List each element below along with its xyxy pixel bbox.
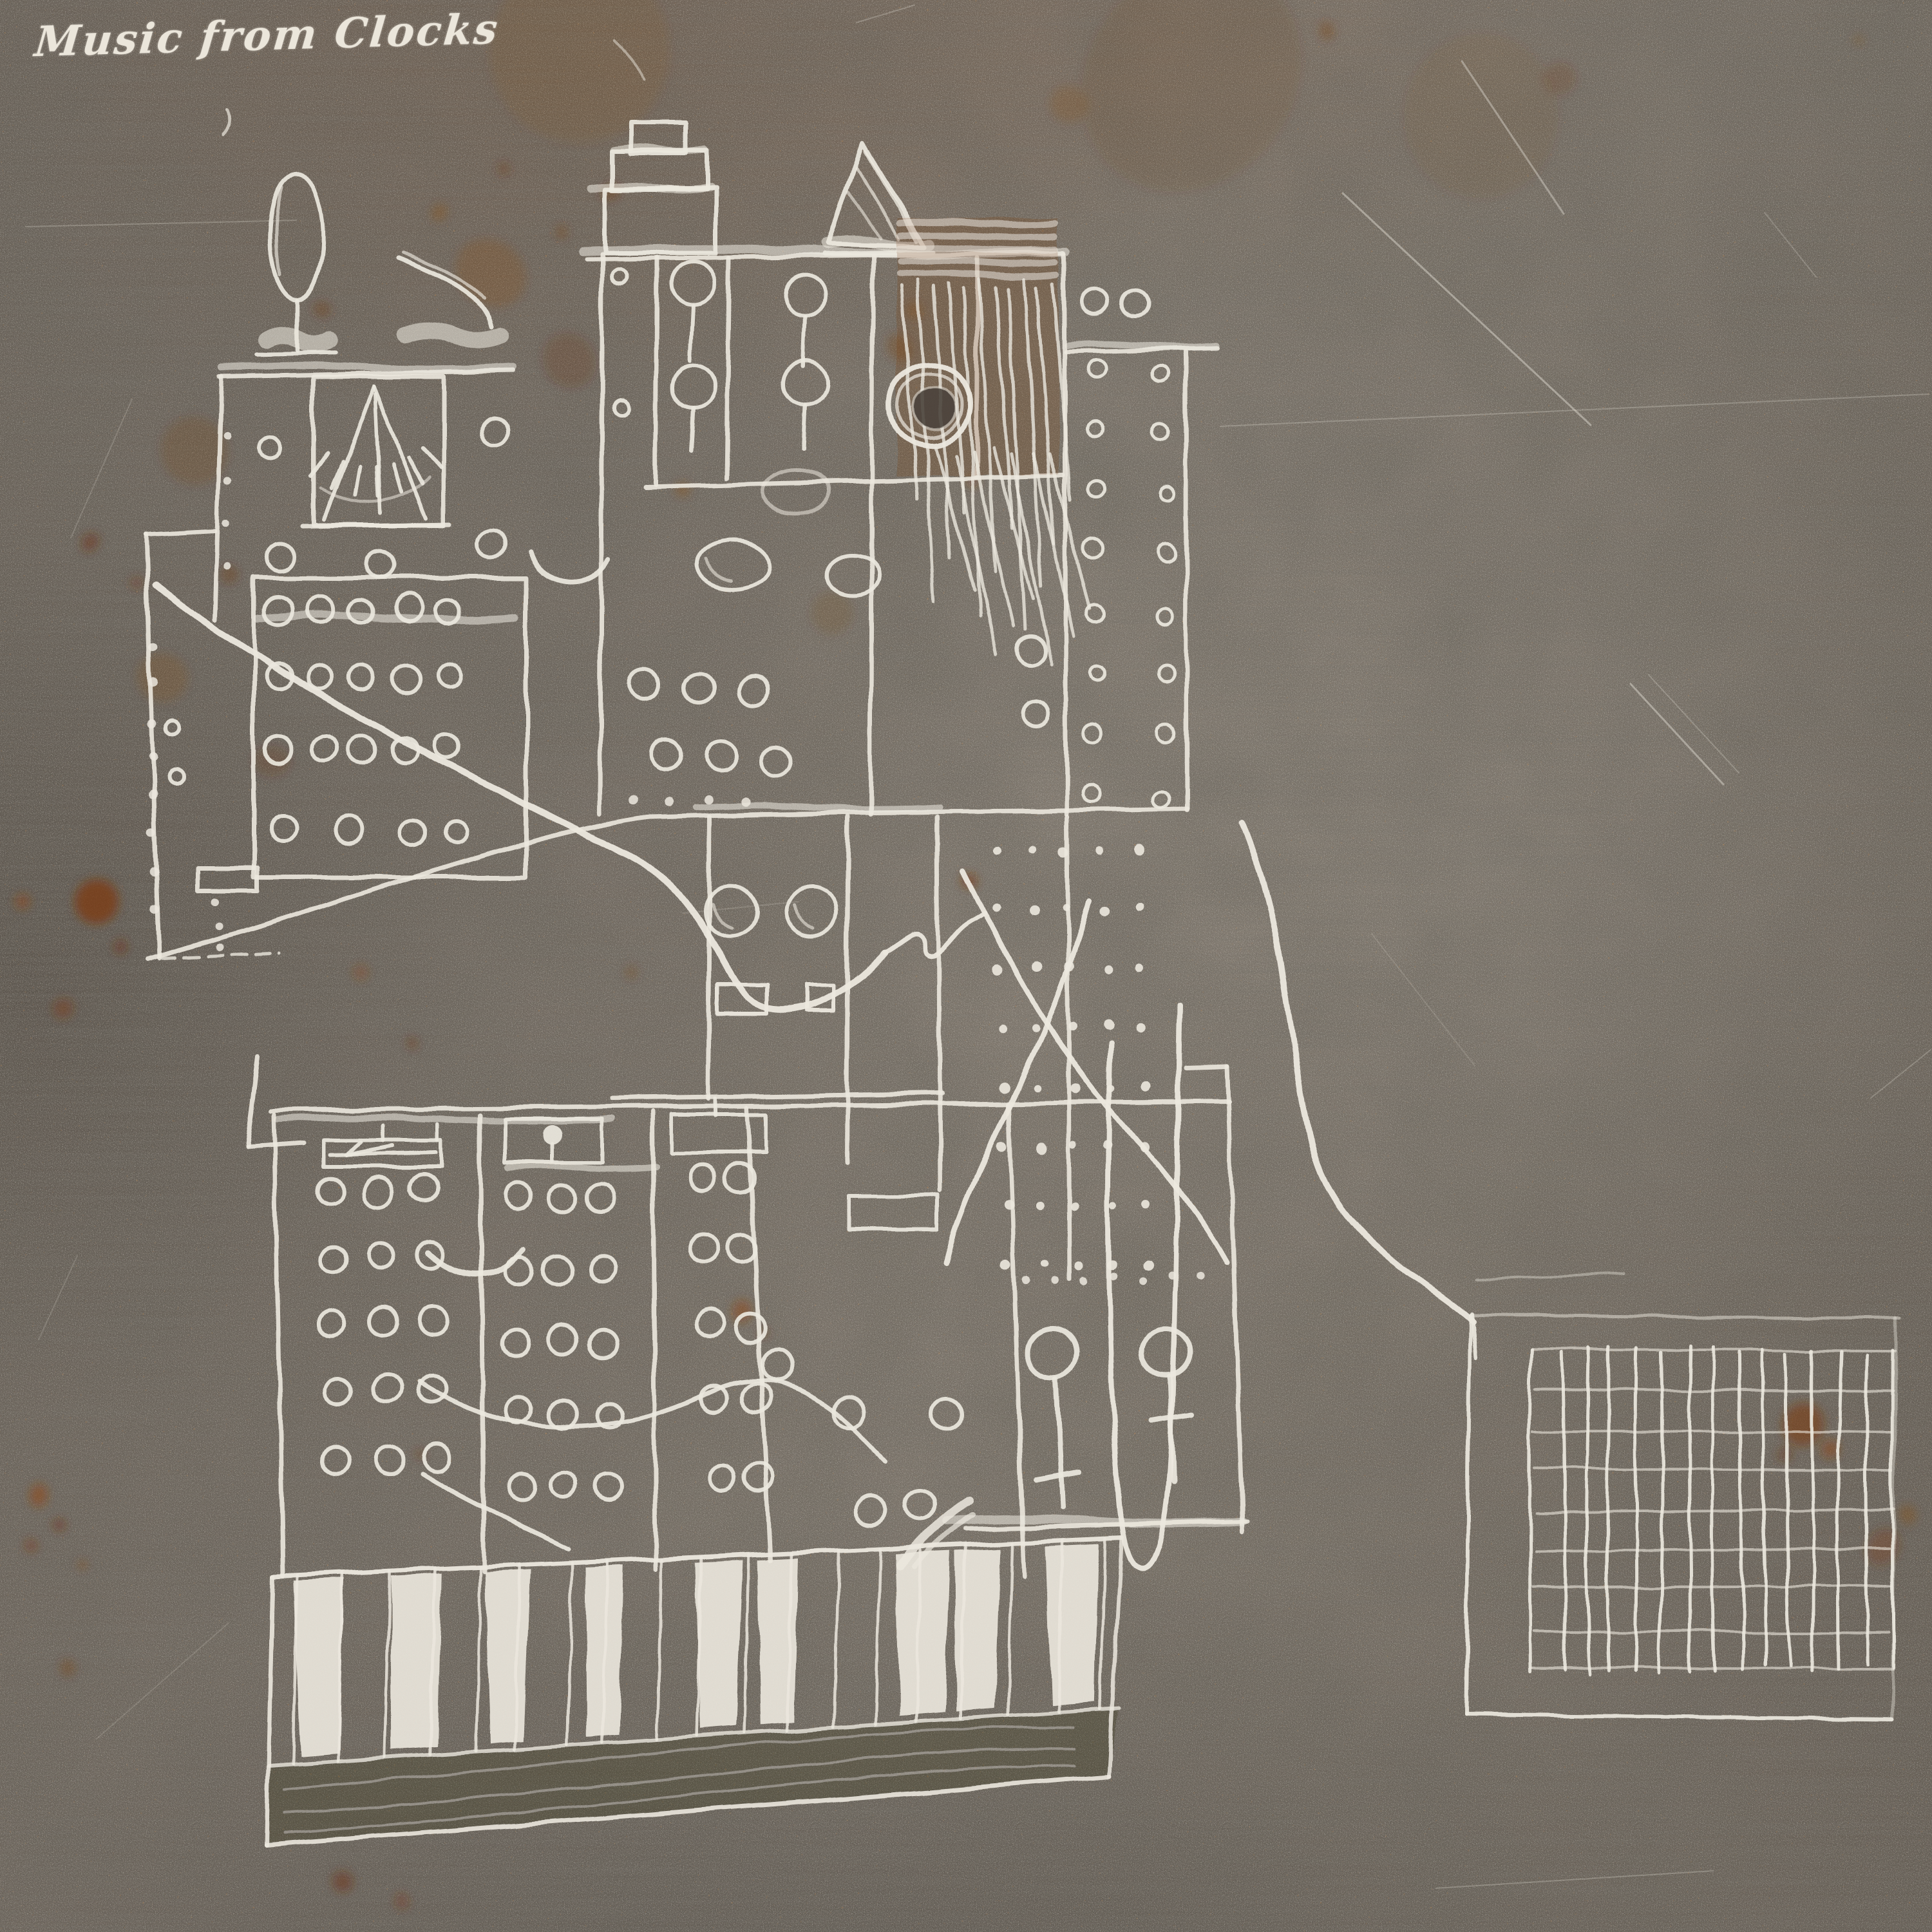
synth-sketch-svg (0, 0, 1932, 1932)
artwork-canvas: Music from Clocks (0, 0, 1932, 1932)
